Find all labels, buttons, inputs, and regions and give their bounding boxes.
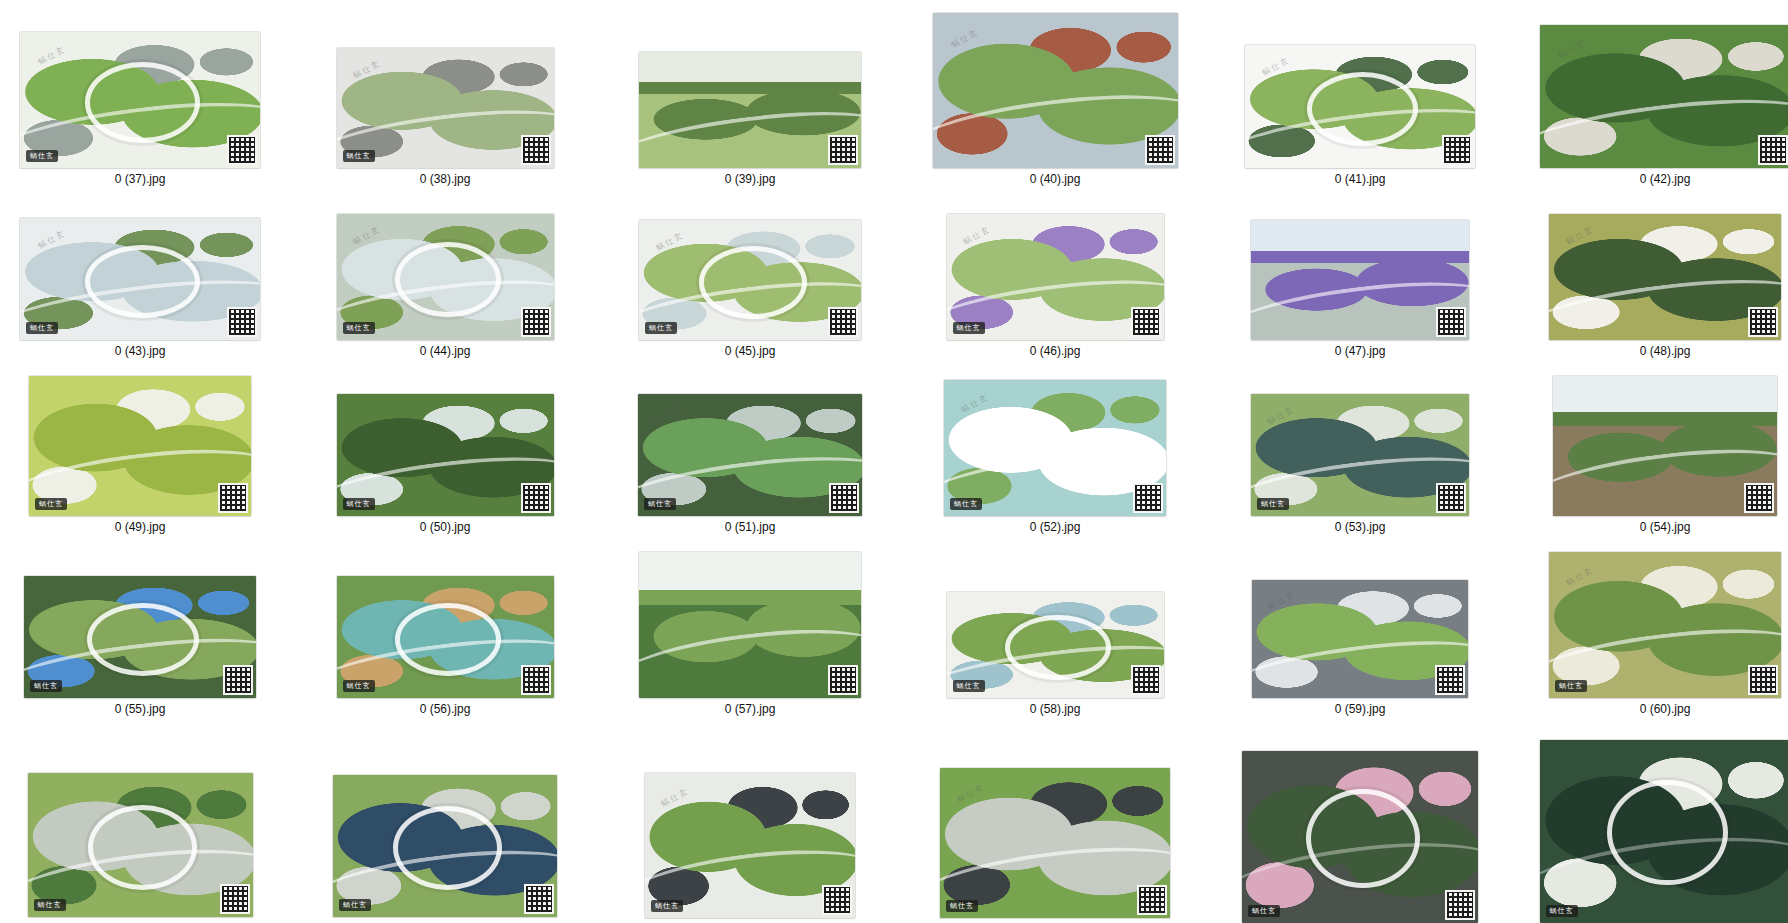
file-name-label[interactable]: 0 (53).jpg: [1250, 520, 1470, 535]
file-thumbnail[interactable]: 蜗仕玄: [1540, 740, 1788, 923]
qr-code-icon: [830, 137, 856, 163]
file-thumbnail[interactable]: 蜗仕玄: [933, 13, 1178, 168]
watermark-badge: 蜗仕玄: [953, 680, 985, 692]
thumbnail-render-art: [1553, 376, 1777, 516]
qr-code-icon: [1133, 309, 1159, 335]
qr-code-icon: [523, 137, 549, 163]
qr-code-icon: [523, 309, 549, 335]
thumbnail-render-art: [333, 775, 557, 917]
qr-code-icon: [1135, 485, 1161, 511]
watermark-badge: 蜗仕玄: [645, 322, 677, 334]
file-thumbnail[interactable]: 蜗仕玄: [1540, 25, 1788, 168]
watermark-badge: 蜗仕玄: [343, 498, 375, 510]
qr-code-icon: [1438, 309, 1464, 335]
thumbnail-render-art: [28, 773, 253, 917]
file-name-label[interactable]: 0 (46).jpg: [945, 344, 1165, 359]
file-name-label[interactable]: 0 (45).jpg: [640, 344, 860, 359]
file-name-label[interactable]: 0 (41).jpg: [1250, 172, 1470, 187]
file-name-label[interactable]: 0 (60).jpg: [1555, 702, 1775, 717]
qr-code-icon: [1750, 309, 1776, 335]
qr-code-icon: [830, 309, 856, 335]
watermark-badge: 蜗仕玄: [946, 900, 978, 912]
watermark-badge: 蜗仕玄: [339, 899, 371, 911]
file-thumbnail[interactable]: 蜗仕玄: [337, 576, 554, 698]
file-thumbnail[interactable]: 蜗仕玄 蜗仕玄: [337, 48, 554, 168]
qr-code-icon: [831, 485, 857, 511]
file-thumbnail[interactable]: 蜗仕玄: [947, 592, 1164, 698]
file-thumbnail[interactable]: [639, 552, 861, 698]
file-thumbnail[interactable]: 蜗仕玄: [29, 376, 251, 516]
thumbnail-render-art: [29, 376, 251, 516]
file-name-label[interactable]: 0 (38).jpg: [335, 172, 555, 187]
qr-code-icon: [1437, 667, 1463, 693]
watermark-badge: 蜗仕玄: [26, 150, 58, 162]
qr-code-icon: [229, 137, 255, 163]
file-thumbnail[interactable]: 蜗仕玄 蜗仕玄: [944, 380, 1166, 516]
qr-code-icon: [225, 667, 251, 693]
qr-code-icon: [1444, 137, 1470, 163]
file-thumbnail[interactable]: 蜗仕玄 蜗仕玄: [638, 394, 862, 516]
file-name-label[interactable]: 0 (52).jpg: [945, 520, 1165, 535]
qr-code-icon: [523, 667, 549, 693]
qr-code-icon: [830, 667, 856, 693]
qr-code-icon: [1760, 137, 1786, 163]
qr-code-icon: [229, 309, 255, 335]
file-thumbnail[interactable]: 蜗仕玄 蜗仕玄: [20, 32, 260, 168]
file-name-label[interactable]: 0 (49).jpg: [30, 520, 250, 535]
watermark-badge: 蜗仕玄: [1546, 905, 1578, 917]
watermark-badge: 蜗仕玄: [1257, 498, 1289, 510]
watermark-badge: 蜗仕玄: [953, 322, 985, 334]
file-thumbnail[interactable]: 蜗仕玄 蜗仕玄: [20, 218, 260, 340]
watermark-badge: 蜗仕玄: [644, 498, 676, 510]
file-name-label[interactable]: 0 (40).jpg: [945, 172, 1165, 187]
file-name-label[interactable]: 0 (57).jpg: [640, 702, 860, 717]
qr-code-icon: [824, 887, 850, 913]
file-name-label[interactable]: 0 (56).jpg: [335, 702, 555, 717]
file-name-label[interactable]: 0 (43).jpg: [30, 344, 250, 359]
file-thumbnail[interactable]: 蜗仕玄 蜗仕玄: [639, 220, 861, 340]
watermark-badge: 蜗仕玄: [950, 498, 982, 510]
file-thumbnail[interactable]: 蜗仕玄 蜗仕玄: [947, 214, 1164, 340]
file-name-label[interactable]: 0 (37).jpg: [30, 172, 250, 187]
file-thumbnail[interactable]: 蜗仕玄 蜗仕玄: [645, 773, 855, 918]
qr-code-icon: [222, 886, 248, 912]
file-thumbnail[interactable]: 蜗仕玄: [1242, 751, 1478, 923]
file-thumbnail[interactable]: 蜗仕玄: [1245, 45, 1475, 168]
file-name-label[interactable]: 0 (44).jpg: [335, 344, 555, 359]
watermark-badge: 蜗仕玄: [1248, 905, 1280, 917]
file-thumbnail[interactable]: 蜗仕玄: [337, 394, 554, 516]
file-name-label[interactable]: 0 (55).jpg: [30, 702, 250, 717]
qr-code-icon: [1438, 485, 1464, 511]
watermark-badge: 蜗仕玄: [651, 900, 683, 912]
file-name-label[interactable]: 0 (42).jpg: [1555, 172, 1775, 187]
file-thumbnail[interactable]: 蜗仕玄 蜗仕玄: [940, 768, 1170, 918]
qr-code-icon: [1147, 137, 1173, 163]
qr-code-icon: [1139, 887, 1165, 913]
file-thumbnail[interactable]: 蜗仕玄 蜗仕玄: [337, 214, 554, 340]
qr-code-icon: [1746, 485, 1772, 511]
thumbnail-render-art: [639, 52, 861, 168]
qr-code-icon: [523, 485, 549, 511]
qr-code-icon: [526, 886, 552, 912]
file-name-label[interactable]: 0 (48).jpg: [1555, 344, 1775, 359]
thumbnail-render-art: [1242, 751, 1478, 923]
file-name-label[interactable]: 0 (59).jpg: [1250, 702, 1470, 717]
file-name-label[interactable]: 0 (47).jpg: [1250, 344, 1470, 359]
file-thumbnail[interactable]: 蜗仕玄: [1252, 580, 1468, 698]
file-name-label[interactable]: 0 (51).jpg: [640, 520, 860, 535]
watermark-badge: 蜗仕玄: [26, 322, 58, 334]
file-name-label[interactable]: 0 (50).jpg: [335, 520, 555, 535]
file-browser-thumbnail-grid: 蜗仕玄 蜗仕玄 0 (37).jpg 蜗仕玄 蜗仕玄 0 (38).jpg 0 …: [0, 0, 1788, 923]
file-thumbnail[interactable]: [1553, 376, 1777, 516]
watermark-badge: 蜗仕玄: [343, 680, 375, 692]
thumbnail-render-art: [1540, 740, 1788, 923]
thumbnail-render-art: [639, 552, 861, 698]
file-name-label[interactable]: 0 (39).jpg: [640, 172, 860, 187]
watermark-badge: 蜗仕玄: [1555, 680, 1587, 692]
qr-code-icon: [1133, 667, 1159, 693]
file-thumbnail[interactable]: 蜗仕玄: [24, 576, 256, 698]
qr-code-icon: [1447, 892, 1473, 918]
qr-code-icon: [1750, 667, 1776, 693]
file-thumbnail[interactable]: 蜗仕玄: [28, 773, 253, 917]
file-thumbnail[interactable]: [639, 52, 861, 168]
watermark-badge: 蜗仕玄: [30, 680, 62, 692]
file-thumbnail[interactable]: 蜗仕玄: [1549, 214, 1781, 340]
qr-code-icon: [220, 485, 246, 511]
file-name-label[interactable]: 0 (54).jpg: [1555, 520, 1775, 535]
file-thumbnail[interactable]: 蜗仕玄 蜗仕玄: [1549, 552, 1781, 698]
watermark-badge: 蜗仕玄: [34, 899, 66, 911]
watermark-badge: 蜗仕玄: [343, 150, 375, 162]
watermark-badge: 蜗仕玄: [35, 498, 67, 510]
file-thumbnail[interactable]: 蜗仕玄: [333, 775, 557, 917]
file-thumbnail[interactable]: [1251, 220, 1469, 340]
thumbnail-render-art: [1251, 220, 1469, 340]
watermark-badge: 蜗仕玄: [343, 322, 375, 334]
file-name-label[interactable]: 0 (58).jpg: [945, 702, 1165, 717]
file-thumbnail[interactable]: 蜗仕玄 蜗仕玄: [1251, 394, 1469, 516]
